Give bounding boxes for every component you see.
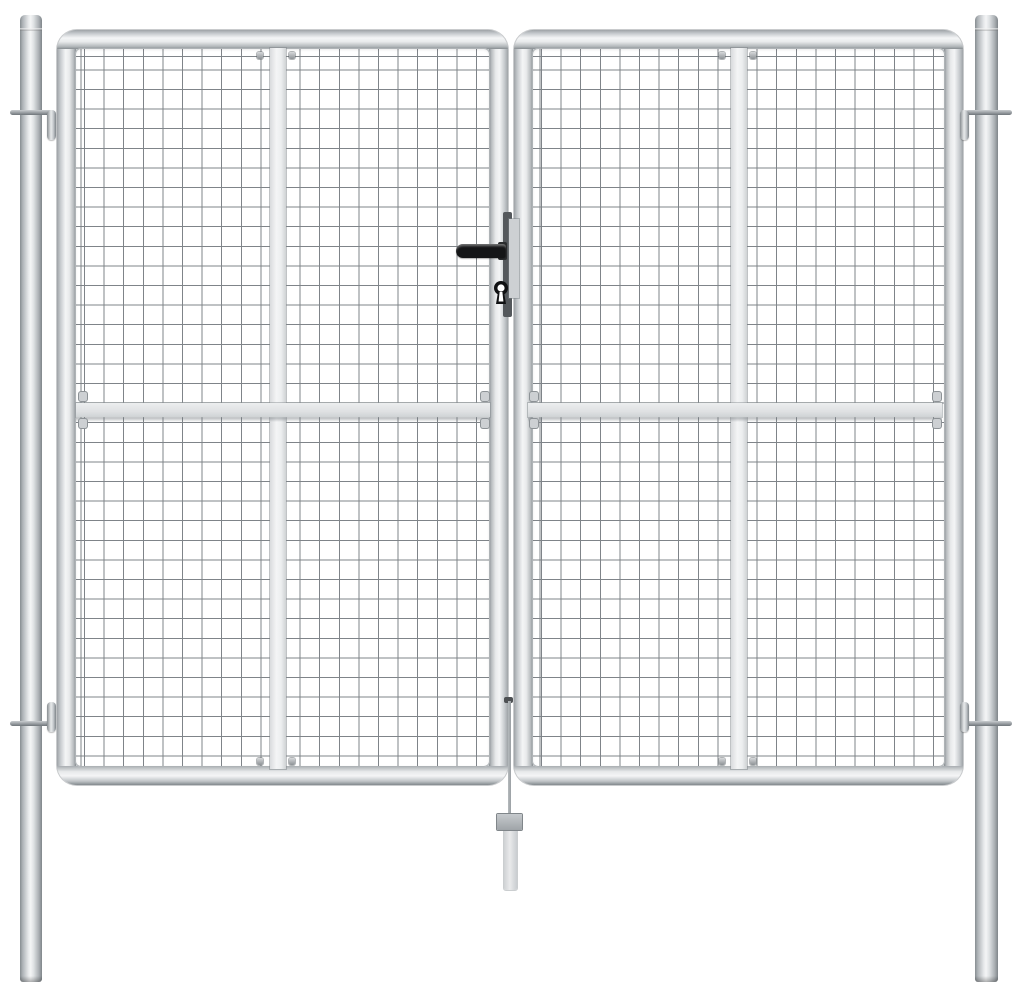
frame-tube-left [57, 30, 76, 785]
rail-bracket [530, 419, 538, 428]
drop-bolt-rod [508, 701, 511, 815]
frame-tube-top [514, 30, 963, 49]
lever-handle [456, 244, 506, 258]
gate-post-right [975, 15, 998, 982]
hinge-pin-top-left [10, 110, 52, 115]
frame-tube-right [944, 30, 963, 785]
drop-bolt-block [497, 814, 522, 830]
ground-sleeve [504, 830, 517, 890]
rail-bracket [933, 419, 941, 428]
rail-bracket [79, 392, 87, 401]
strap-screw [719, 758, 725, 765]
frame-tube-right [489, 30, 508, 785]
keyhole-icon [492, 280, 510, 306]
frame-tube-top [57, 30, 508, 49]
strap-screw [750, 758, 756, 765]
hinge-hook-top-right [960, 110, 969, 140]
rail-bracket [530, 392, 538, 401]
rail-shadow [528, 418, 942, 422]
rail-bracket [481, 392, 489, 401]
strap-screw [257, 758, 263, 765]
hinge-pin-bottom-right [966, 721, 1012, 726]
mid-rail-right [528, 403, 942, 417]
mid-rail-left [76, 403, 490, 417]
lock-plate-light [509, 219, 519, 298]
rail-bracket [933, 392, 941, 401]
strap-screw [257, 52, 263, 59]
strap-screw [719, 52, 725, 59]
hinge-hook-bottom-left [47, 702, 56, 732]
rail-shadow [76, 418, 490, 422]
strap-screw [750, 52, 756, 59]
gate-post-left [20, 15, 42, 982]
rail-bracket [79, 419, 87, 428]
product-photo-garden-gate [0, 0, 1020, 999]
hinge-hook-bottom-right [960, 702, 969, 732]
rail-bracket [481, 419, 489, 428]
hinge-hook-top-left [47, 110, 56, 140]
strap-screw [289, 52, 295, 59]
strap-screw [289, 758, 295, 765]
hinge-pin-bottom-left [10, 721, 52, 726]
hinge-pin-top-right [966, 110, 1012, 115]
